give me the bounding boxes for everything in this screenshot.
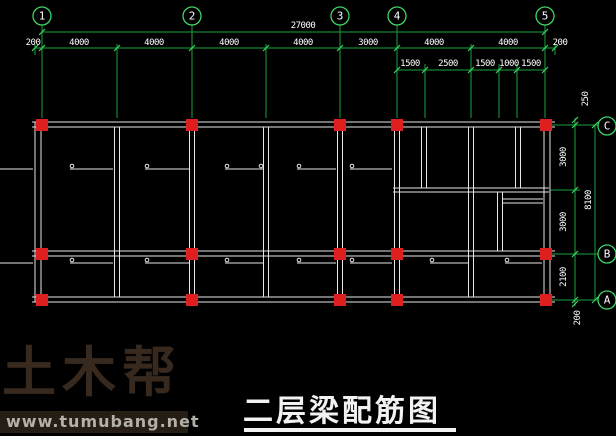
dimension-text: 3000 xyxy=(559,147,569,167)
column-marker xyxy=(186,119,198,131)
column-marker xyxy=(36,294,48,306)
axis-label: 5 xyxy=(542,10,549,23)
watermark-logo: 土木帮 xyxy=(2,346,182,400)
column-marker xyxy=(186,248,198,260)
dimension-text: 2100 xyxy=(559,267,569,287)
axis-label: 3 xyxy=(337,10,344,23)
column-marker xyxy=(334,248,346,260)
dimension-text: 3000 xyxy=(358,38,378,48)
column-marker xyxy=(36,119,48,131)
rebar-hook-icon xyxy=(70,164,74,168)
dimension-text: 200 xyxy=(553,38,568,48)
dimension-text: 4000 xyxy=(424,38,444,48)
axis-label: 1 xyxy=(39,10,46,23)
dimension-text: 2500 xyxy=(438,59,458,69)
column-marker xyxy=(36,248,48,260)
dimension-text: 27000 xyxy=(291,21,316,31)
column-marker xyxy=(391,294,403,306)
dimension-text: 200 xyxy=(26,38,41,48)
watermark-url-bar: www.tumubang.net xyxy=(0,411,188,433)
rebar-hook-icon xyxy=(145,164,149,168)
rebar-hook-icon xyxy=(297,258,301,262)
axis-label: B xyxy=(604,248,611,261)
column-marker xyxy=(334,294,346,306)
rebar-hook-icon xyxy=(70,258,74,262)
cad-viewport: 12345CBA20040004000400040003000400040002… xyxy=(0,0,616,436)
dimension-text: 1500 xyxy=(475,59,495,69)
dimension-text: 1500 xyxy=(521,59,541,69)
dimension-text: 200 xyxy=(573,311,583,326)
axis-label: 4 xyxy=(394,10,401,23)
dimension-text: 4000 xyxy=(69,38,89,48)
rebar-hook-icon xyxy=(297,164,301,168)
title-underline xyxy=(244,428,456,432)
axis-label: C xyxy=(604,120,611,133)
column-marker xyxy=(540,248,552,260)
rebar-hook-icon xyxy=(505,258,509,262)
rebar-hook-icon xyxy=(145,258,149,262)
watermark-url: www.tumubang.net xyxy=(0,411,188,433)
axis-label: A xyxy=(604,294,611,307)
rebar-hook-icon xyxy=(259,164,263,168)
dimension-text: 8100 xyxy=(584,190,594,210)
dimension-text: 1000 xyxy=(499,59,519,69)
rebar-hook-icon xyxy=(225,164,229,168)
column-marker xyxy=(391,119,403,131)
dimension-text: 250 xyxy=(581,92,591,107)
rebar-hook-icon xyxy=(430,258,434,262)
dimension-text: 3000 xyxy=(559,212,569,232)
column-marker xyxy=(540,294,552,306)
dimension-text: 4000 xyxy=(219,38,239,48)
column-marker xyxy=(391,248,403,260)
dimension-text: 1500 xyxy=(400,59,420,69)
column-marker xyxy=(540,119,552,131)
dimension-text: 4000 xyxy=(144,38,164,48)
column-marker xyxy=(334,119,346,131)
drawing-title: 二层梁配筋图 xyxy=(243,395,441,428)
rebar-hook-icon xyxy=(350,164,354,168)
axis-label: 2 xyxy=(189,10,196,23)
column-marker xyxy=(186,294,198,306)
dimension-text: 4000 xyxy=(498,38,518,48)
dimension-text: 4000 xyxy=(293,38,313,48)
rebar-hook-icon xyxy=(225,258,229,262)
rebar-hook-icon xyxy=(350,258,354,262)
